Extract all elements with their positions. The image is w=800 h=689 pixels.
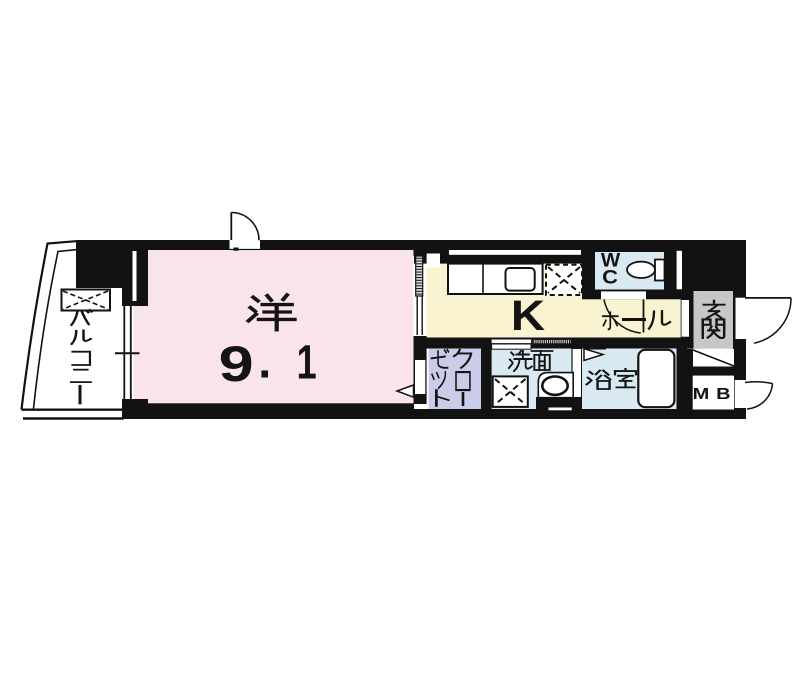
svg-text:9: 9 [219, 337, 254, 392]
svg-text:1: 1 [297, 336, 317, 389]
svg-text:MB: MB [693, 385, 738, 403]
svg-text:K: K [511, 291, 546, 340]
svg-text:.: . [258, 335, 271, 388]
svg-text:C: C [602, 267, 618, 289]
